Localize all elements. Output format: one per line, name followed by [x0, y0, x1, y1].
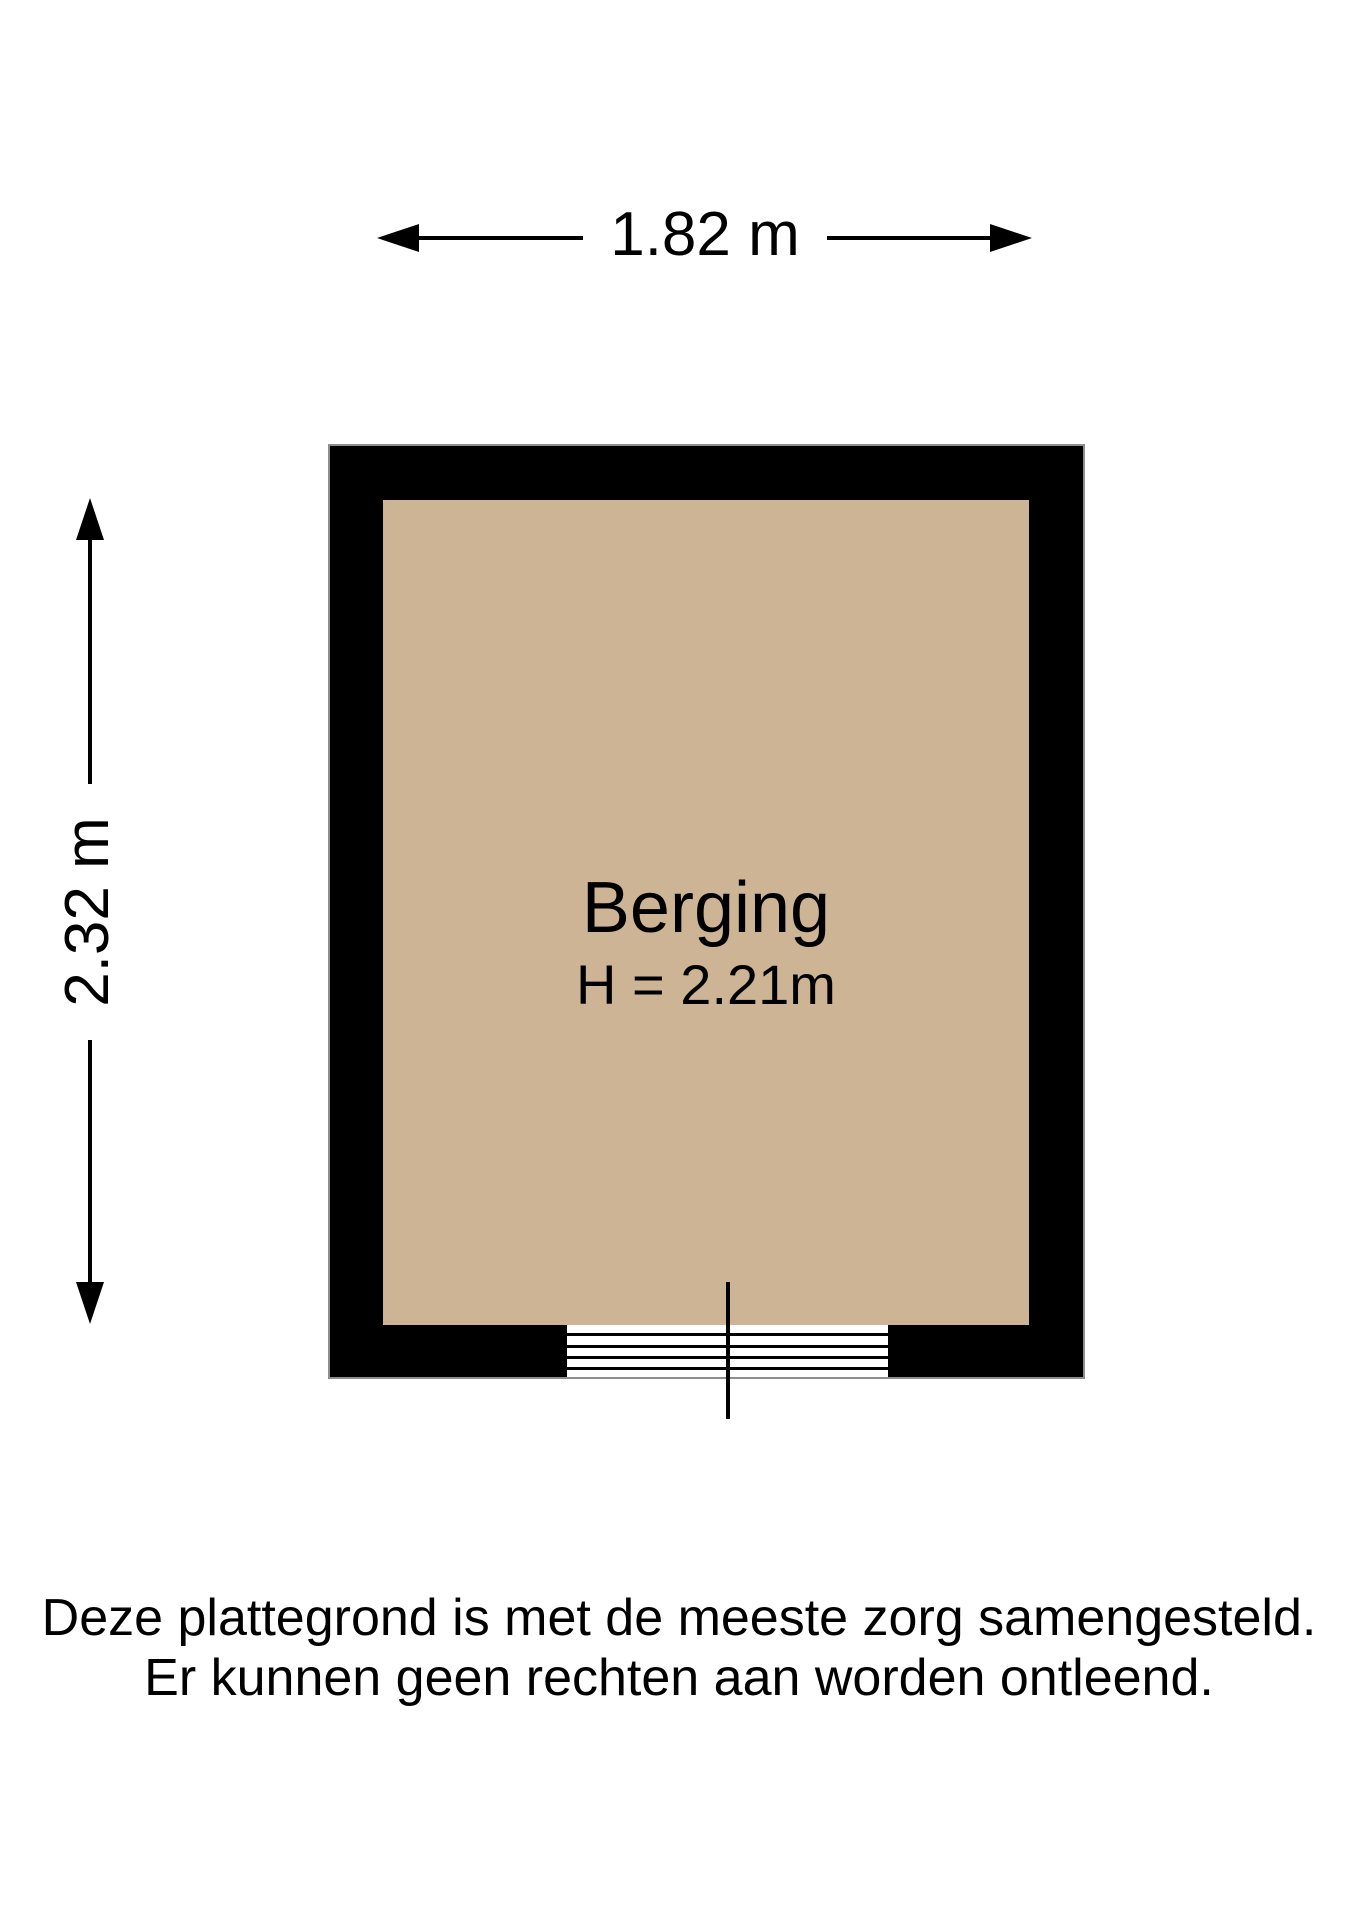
floorplan-canvas: 1.82 m 2.32 m Berging H = 2.21m Deze pla… [0, 0, 1358, 1920]
disclaimer: Deze plattegrond is met de meeste zorg s… [0, 1588, 1358, 1708]
arrow-up-icon [76, 498, 104, 540]
room-ceiling-height-label: H = 2.21m [383, 952, 1029, 1018]
arrow-down-icon [76, 1282, 104, 1324]
arrow-left-icon [377, 224, 419, 252]
room-label: Berging H = 2.21m [383, 868, 1029, 1018]
height-dimension-label: 2.32 m [53, 817, 123, 1007]
arrow-right-icon [990, 224, 1032, 252]
width-dimension-label: 1.82 m [583, 200, 827, 270]
door-swing-line [726, 1282, 730, 1419]
width-dimension-line-right [827, 236, 992, 240]
room-name-label: Berging [383, 868, 1029, 948]
width-dimension-line-left [415, 236, 583, 240]
height-dimension-line-top [88, 538, 92, 784]
disclaimer-line-2: Er kunnen geen rechten aan worden ontlee… [0, 1648, 1358, 1708]
height-dimension-line-bottom [88, 1040, 92, 1284]
disclaimer-line-1: Deze plattegrond is met de meeste zorg s… [0, 1588, 1358, 1648]
